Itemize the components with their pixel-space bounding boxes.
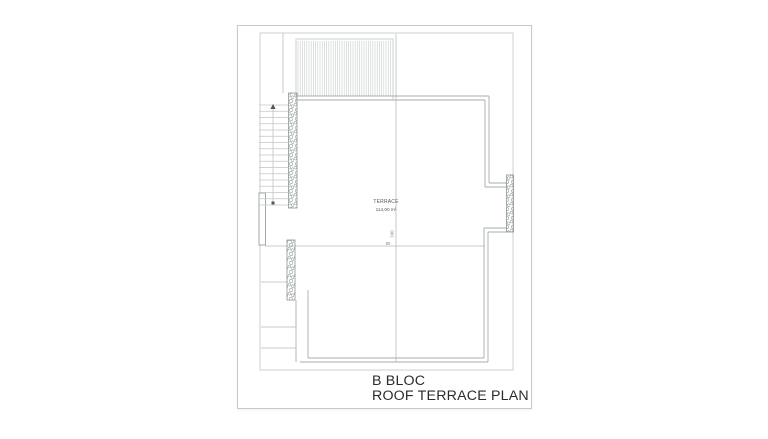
dimension-label-horizontal: 90 [386, 241, 391, 246]
stair-start-dot [272, 202, 275, 205]
hatched-wall [289, 93, 298, 208]
dimension-label-vertical: 100 [390, 230, 395, 238]
title-block: B BLOC ROOF TERRACE PLAN [372, 374, 529, 404]
hatched-wall [287, 240, 295, 300]
plan-name: ROOF TERRACE PLAN [372, 389, 529, 404]
room-area-label: 114,00 m² [376, 207, 397, 212]
hatched-wall [507, 175, 514, 232]
wall-segment [259, 193, 266, 245]
drawing-canvas: TERRACE 114,00 m² 100 90 B BLOC ROOF TER… [0, 0, 768, 439]
block-name: B BLOC [372, 374, 529, 389]
room-label: TERRACE [373, 199, 399, 205]
